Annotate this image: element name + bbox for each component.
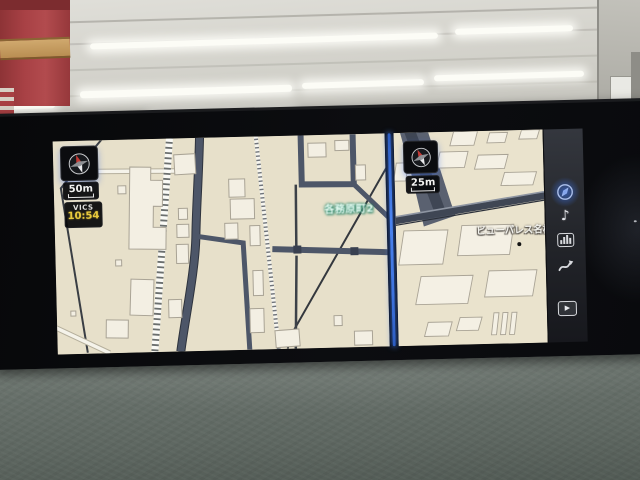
- column-cap: [0, 0, 70, 10]
- video-icon: ▶: [558, 300, 577, 315]
- map-scale-button[interactable]: 50m: [63, 181, 99, 200]
- ceiling-joint: [0, 52, 640, 74]
- video-button[interactable]: ▶: [548, 299, 587, 318]
- showroom-scene: 50m VICS 10:54 各務原町2: [0, 0, 640, 480]
- navigation-display: 50m VICS 10:54 各務原町2: [0, 98, 640, 370]
- poi-label: ビューパレス名柄: [476, 221, 548, 237]
- vics-badge: VICS 10:54: [64, 201, 103, 228]
- nav-compass-button[interactable]: [545, 178, 585, 207]
- nav-sidebar: ♪ ▶: [543, 129, 588, 343]
- intersection-label: 各務原町2: [324, 200, 374, 216]
- compass-rose: [67, 151, 92, 176]
- fluorescent-light: [90, 33, 438, 50]
- map-right-3d[interactable]: 25m ビューパレス名柄: [394, 130, 548, 347]
- map-scale-label: 25m: [411, 177, 436, 189]
- nav-screen: 50m VICS 10:54 各務原町2: [53, 129, 588, 355]
- compass-icon[interactable]: [403, 140, 439, 174]
- route-icon: [557, 256, 576, 273]
- music-note-button[interactable]: ♪: [545, 205, 585, 228]
- ceiling-joint: [0, 4, 640, 26]
- compass-icon[interactable]: [60, 145, 99, 181]
- map-scale-label: 50m: [69, 184, 94, 196]
- fluorescent-light: [80, 85, 292, 99]
- audio-levels-icon: [557, 233, 574, 247]
- active-glow: [549, 177, 580, 208]
- map-left-canvas: [53, 133, 390, 354]
- map-left-2d[interactable]: 50m VICS 10:54 各務原町2: [53, 133, 390, 354]
- column-gold-band: [0, 37, 70, 60]
- fluorescent-light: [455, 25, 573, 35]
- compass-rose: [410, 146, 433, 169]
- bezel-reflection-speck: [634, 220, 637, 222]
- map-scale-button[interactable]: 25m: [406, 175, 440, 194]
- route-button[interactable]: [547, 255, 586, 276]
- vics-time: 10:54: [65, 211, 101, 222]
- car-dashboard: [0, 348, 640, 480]
- play-glyph: ▶: [565, 304, 571, 311]
- fluorescent-light: [434, 71, 584, 82]
- audio-levels-button[interactable]: [546, 231, 585, 250]
- music-note-icon: ♪: [561, 208, 570, 224]
